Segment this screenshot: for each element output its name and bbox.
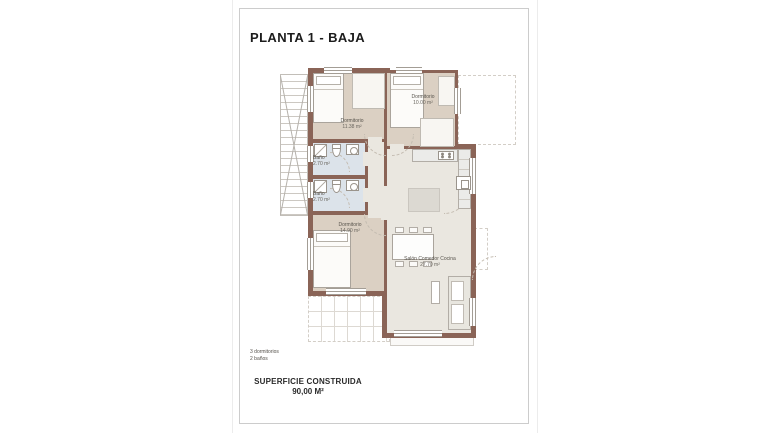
window [307, 238, 314, 270]
plan-sheet: PLANTA 1 - BAJA [233, 0, 537, 433]
built-area-label: SUPERFICIE CONSTRUIDA [247, 377, 369, 386]
room-count-summary: 3 dormitorios 2 baños [250, 349, 279, 362]
pillow [316, 76, 341, 85]
sofa [448, 276, 471, 330]
wardrobe [420, 118, 454, 147]
pillow [393, 76, 421, 85]
built-area-block: SUPERFICIE CONSTRUIDA 90,00 M² [247, 377, 369, 396]
window [454, 88, 461, 114]
door-opening [363, 188, 370, 202]
window [326, 288, 366, 295]
summary-banos: 2 baños [250, 356, 279, 363]
side-table [431, 281, 440, 304]
bed [313, 230, 351, 288]
plan-title: PLANTA 1 - BAJA [250, 30, 365, 45]
chair [395, 227, 404, 233]
chair [409, 227, 418, 233]
bathroom-sink [346, 180, 359, 191]
bathroom-sink [346, 144, 359, 155]
label-bano-2: Baño 2.70 m² [313, 191, 341, 203]
blanket-line [314, 89, 343, 90]
sofa-cushion [451, 281, 464, 301]
terrace-pergola-grid [308, 296, 390, 342]
chair [423, 227, 432, 233]
blanket-line [314, 246, 350, 247]
window [307, 86, 314, 112]
label-dormitorio-3: Dormitorio 14.90 m² [318, 222, 382, 234]
kitchen-island [408, 188, 440, 212]
wardrobe [352, 73, 385, 109]
label-dormitorio-2: Dormitorio 10.00 m² [392, 94, 454, 106]
window [396, 67, 422, 74]
window [324, 67, 352, 74]
roof-overhang-dashed [458, 75, 516, 145]
summary-dormitorios: 3 dormitorios [250, 349, 279, 356]
window [394, 330, 442, 337]
floor-plan: Dormitorio 11.38 m² Dormitorio 10.00 m² … [280, 60, 530, 350]
label-dormitorio-1: Dormitorio 11.38 m² [320, 118, 384, 130]
staircase [280, 74, 308, 216]
door-opening [363, 152, 370, 166]
pillow [316, 233, 348, 242]
bed [313, 73, 344, 123]
sofa-cushion [451, 304, 464, 324]
label-bano-1: Baño 2.70 m² [313, 155, 341, 167]
built-area-value: 90,00 M² [247, 387, 369, 396]
blanket-line [391, 89, 423, 90]
label-salon-comedor-cocina: Salón Comedor Cocina 27.70 m² [390, 256, 470, 268]
kitchen-sink [456, 176, 471, 190]
window [469, 298, 476, 326]
stove [438, 151, 454, 160]
